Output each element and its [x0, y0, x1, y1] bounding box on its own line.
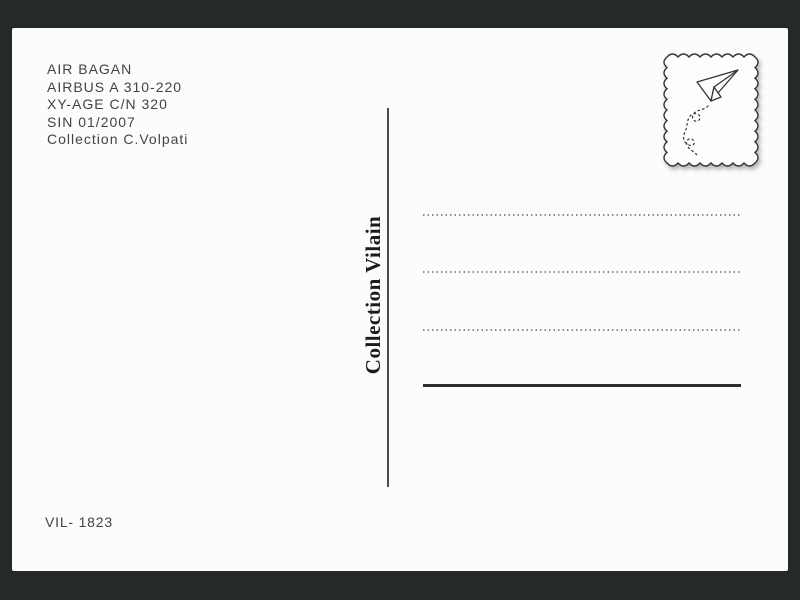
signature-line [423, 384, 741, 387]
address-line-3 [423, 329, 741, 331]
caption-line-airline: AIR BAGAN [47, 61, 188, 79]
collection-label: Collection Vilain [360, 210, 386, 380]
vertical-divider-line [387, 108, 389, 487]
caption-line-date: SIN 01/2007 [47, 114, 188, 132]
caption-block: AIR BAGAN AIRBUS A 310-220 XY-AGE C/N 32… [47, 61, 188, 149]
stamp-frame [660, 48, 762, 174]
caption-line-collection: Collection C.Volpati [47, 131, 188, 149]
address-line-2 [423, 271, 741, 273]
stamp-box [660, 48, 762, 174]
stamp-scalloped-border [664, 54, 758, 166]
catalog-number: VIL- 1823 [45, 514, 113, 530]
address-line-1 [423, 214, 741, 216]
caption-line-aircraft: AIRBUS A 310-220 [47, 79, 188, 97]
photo-frame: AIR BAGAN AIRBUS A 310-220 XY-AGE C/N 32… [0, 0, 800, 600]
caption-line-registration: XY-AGE C/N 320 [47, 96, 188, 114]
postcard-back: AIR BAGAN AIRBUS A 310-220 XY-AGE C/N 32… [12, 28, 788, 571]
